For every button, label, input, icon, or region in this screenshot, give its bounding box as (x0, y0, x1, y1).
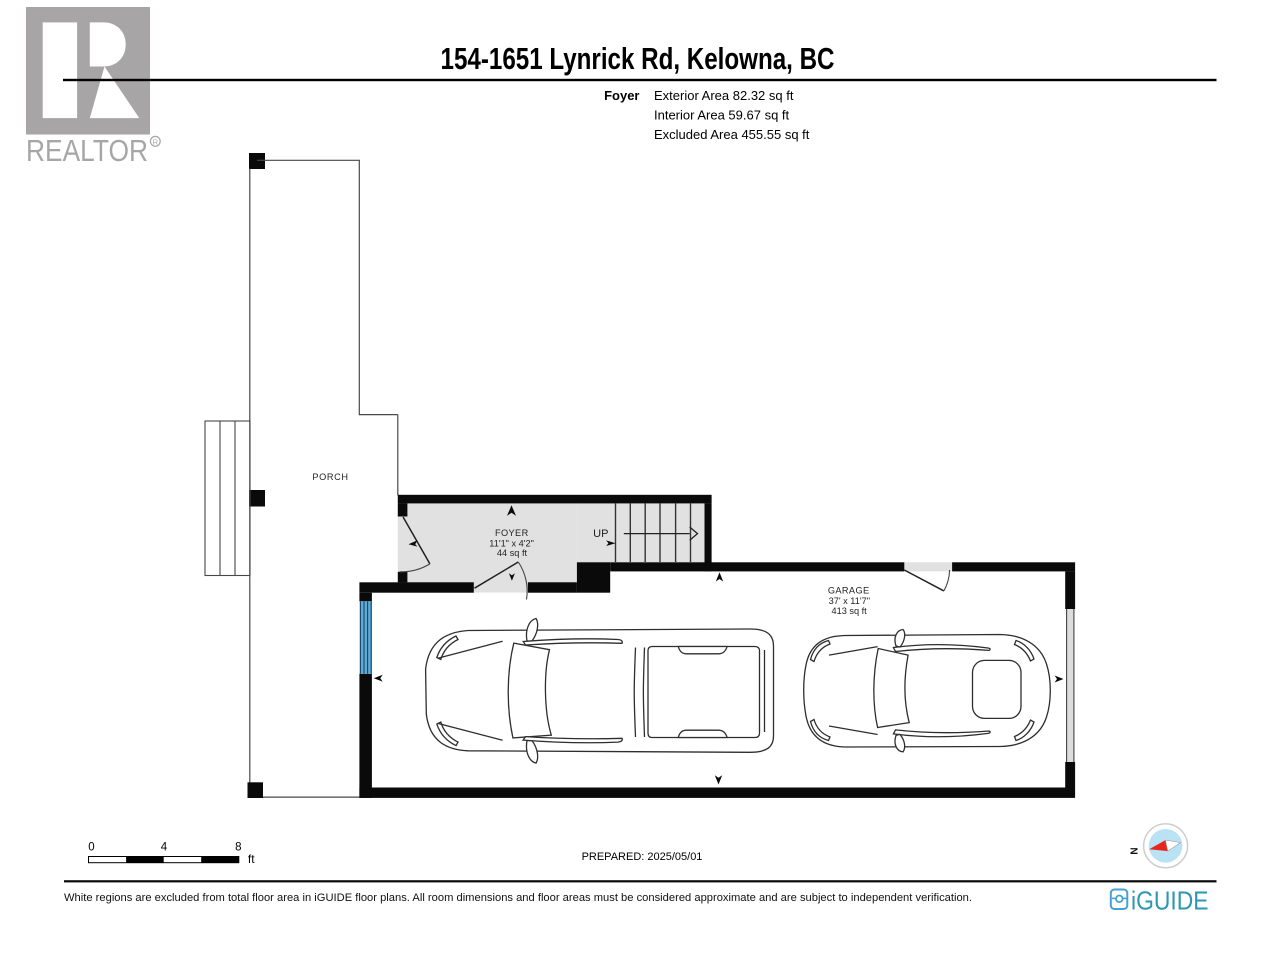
svg-text:8: 8 (235, 842, 241, 854)
svg-text:44 sq ft: 44 sq ft (497, 548, 528, 558)
svg-text:R: R (153, 138, 159, 147)
svg-text:154-1651 Lynrick Rd, Kelowna,: 154-1651 Lynrick Rd, Kelowna, BC (441, 41, 835, 76)
svg-text:UP: UP (593, 528, 608, 540)
svg-text:Excluded Area 455.55 sq ft: Excluded Area 455.55 sq ft (654, 127, 810, 142)
svg-text:4: 4 (161, 842, 168, 854)
svg-text:37' x 11'7": 37' x 11'7" (829, 596, 870, 606)
svg-text:413 sq ft: 413 sq ft (831, 606, 867, 616)
svg-text:PREPARED: 2025/05/01: PREPARED: 2025/05/01 (582, 851, 703, 863)
svg-text:Interior Area 59.67 sq ft: Interior Area 59.67 sq ft (654, 108, 790, 123)
svg-text:ft: ft (248, 852, 255, 866)
svg-text:White regions are excluded fro: White regions are excluded from total fl… (64, 892, 972, 904)
svg-text:11'1" x 4'2": 11'1" x 4'2" (489, 539, 534, 549)
svg-text:Exterior Area 82.32 sq ft: Exterior Area 82.32 sq ft (654, 88, 794, 103)
svg-text:N: N (1130, 847, 1141, 854)
svg-text:Foyer: Foyer (604, 88, 639, 103)
svg-text:GARAGE: GARAGE (828, 586, 870, 596)
svg-text:FOYER: FOYER (495, 528, 529, 538)
svg-text:iGUIDE: iGUIDE (1131, 886, 1209, 916)
svg-text:PORCH: PORCH (312, 472, 348, 482)
svg-text:REALTOR: REALTOR (26, 133, 148, 168)
svg-text:0: 0 (88, 842, 94, 854)
